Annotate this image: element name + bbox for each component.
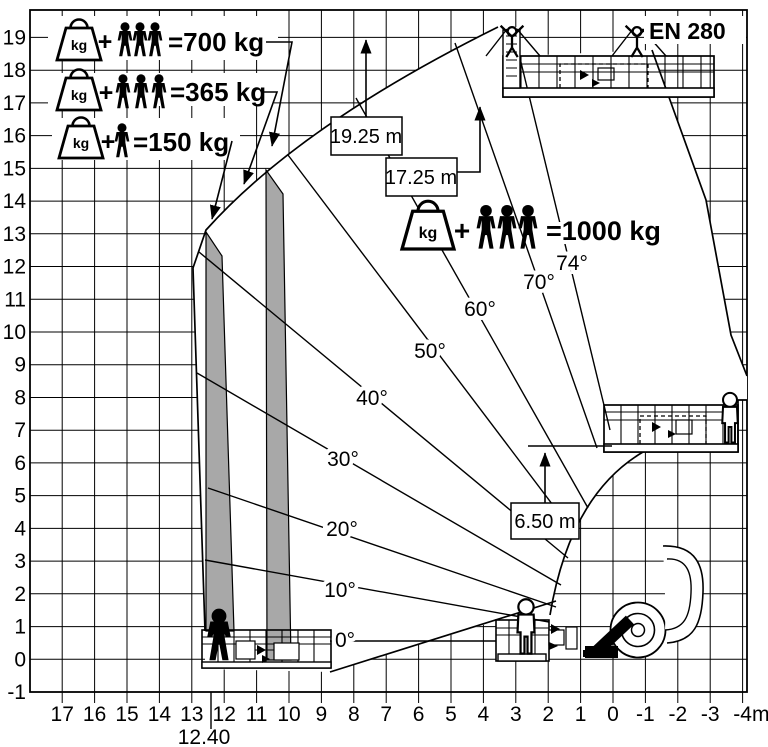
load-diagram: 19.25 m 17.25 m 6.50 m kg + =700 kg kg	[0, 0, 768, 747]
kg-icon-label: kg	[419, 225, 438, 242]
x-tick-label: -4	[733, 703, 752, 726]
x-tick-label: 13	[180, 703, 203, 726]
x-axis-unit: m	[752, 703, 768, 726]
y-tick-label: 1	[14, 616, 26, 639]
kg-icon-label: kg	[71, 87, 87, 103]
x-tick-label: 16	[83, 703, 106, 726]
y-tick-label: 6	[14, 452, 26, 475]
y-tick-label: 4	[14, 517, 26, 540]
y-tick-label: 3	[14, 550, 26, 573]
x-tick-label: -1	[636, 703, 655, 726]
y-tick-label: 18	[3, 59, 26, 82]
y-tick-label: 2	[14, 583, 26, 606]
y-tick-label: 7	[14, 419, 26, 442]
y-tick-label: 8	[14, 387, 26, 410]
plus-sign: +	[99, 79, 114, 107]
y-tick-label: 5	[14, 485, 26, 508]
x-tick-label: 6	[413, 703, 425, 726]
y-tick-label: 14	[3, 190, 27, 213]
y-tick-label: 19	[3, 26, 26, 49]
angle-label-60: 60°	[464, 298, 496, 321]
angle-label-20: 20°	[326, 518, 358, 541]
max-working-height-label: 19.25 m	[330, 126, 402, 148]
plus-sign: +	[98, 28, 113, 56]
x-tick-label: 14	[148, 703, 172, 726]
x-tick-label: 4	[478, 703, 490, 726]
y-tick-label: 9	[14, 354, 26, 377]
y-tick-label: 17	[3, 92, 26, 115]
upper-platform-height-label: 17.25 m	[385, 167, 457, 189]
y-tick-label: 16	[3, 125, 26, 148]
x-tick-label: 17	[51, 703, 74, 726]
y-axis-labels: 191817161514131211109876543210-1	[3, 26, 27, 704]
x-tick-label: 11	[246, 703, 268, 726]
angle-label-70: 70°	[523, 271, 555, 294]
y-tick-label: 12	[3, 256, 26, 279]
capacity-365-label: =365 kg	[170, 77, 266, 107]
x-tick-label: 2	[542, 703, 554, 726]
angle-label-0: 0°	[335, 629, 355, 652]
y-tick-label: 15	[3, 157, 26, 180]
max-outreach-label: 12.40	[178, 726, 231, 747]
x-tick-label: 9	[316, 703, 328, 726]
x-tick-label: 0	[607, 703, 619, 726]
x-tick-label: 15	[115, 703, 138, 726]
capacity-1000-label: =1000 kg	[546, 216, 661, 246]
x-axis-labels: 17161514131211109876543210-1-2-3-4	[51, 703, 753, 726]
y-tick-label: 11	[4, 288, 26, 311]
x-tick-label: -2	[668, 703, 687, 726]
x-tick-label: 1	[575, 703, 587, 726]
y-tick-label: 13	[3, 223, 26, 246]
capacity-150-label: =150 kg	[133, 127, 229, 157]
angle-label-74: 74°	[556, 252, 588, 275]
x-tick-label: 5	[445, 703, 457, 726]
capacity-700-label: =700 kg	[168, 27, 264, 57]
angle-label-40: 40°	[356, 387, 388, 410]
standard-label: EN 280	[649, 18, 726, 44]
plus-sign: +	[101, 128, 116, 156]
kg-icon-label: kg	[73, 135, 89, 151]
angle-label-30: 30°	[327, 448, 359, 471]
chassis	[585, 546, 703, 658]
kg-icon-label: kg	[71, 37, 87, 53]
angle-label-50: 50°	[414, 340, 446, 363]
x-tick-label: 3	[510, 703, 522, 726]
standard-badge: EN 280	[644, 16, 746, 44]
y-tick-label: -1	[7, 681, 26, 704]
angle-label-10: 10°	[324, 579, 356, 602]
plus-sign: +	[454, 215, 470, 246]
x-tick-label: 10	[277, 703, 300, 726]
y-tick-label: 10	[3, 321, 26, 344]
x-tick-label: -3	[701, 703, 720, 726]
x-tick-label: 8	[348, 703, 360, 726]
y-tick-label: 0	[14, 648, 26, 671]
x-tick-label: 7	[380, 703, 392, 726]
mid-platform-height-label: 6.50 m	[514, 511, 575, 533]
x-tick-label: 12	[213, 703, 236, 726]
